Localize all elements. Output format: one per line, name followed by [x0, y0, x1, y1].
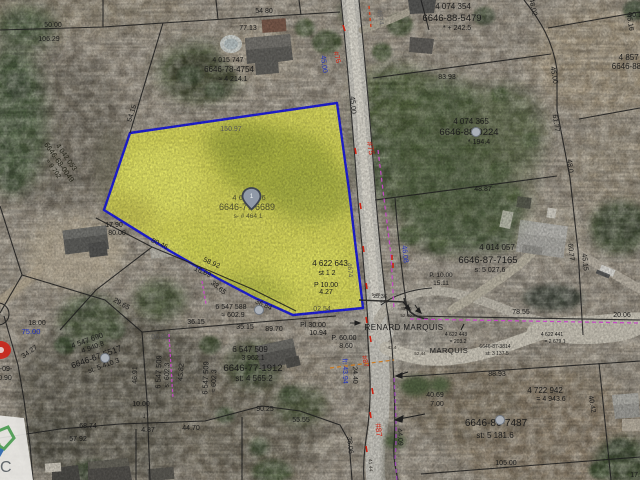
svg-text:6646-88-0224: 6646-88-0224: [439, 127, 498, 138]
svg-text:18.00: 18.00: [28, 320, 46, 327]
svg-text:6646-88-1: 6646-88-1: [612, 62, 640, 71]
svg-text:48.87: 48.87: [474, 186, 492, 193]
svg-text:Pl 30.00: Pl 30.00: [300, 322, 326, 329]
svg-text:106.29: 106.29: [38, 36, 60, 43]
svg-text:3 962.1: 3 962.1: [241, 355, 264, 362]
svg-text:4 015 747: 4 015 747: [212, 57, 243, 64]
svg-text:st: 3 137.5: st: 3 137.5: [485, 351, 509, 357]
svg-text:24.40: 24.40: [351, 366, 359, 384]
svg-text:6 547 509: 6 547 509: [200, 361, 210, 395]
svg-text:46.91: 46.91: [132, 366, 140, 384]
svg-text:4 074 354: 4 074 354: [435, 2, 471, 11]
svg-text:4.79: 4.79: [380, 299, 389, 304]
svg-text:52.80: 52.80: [400, 313, 412, 318]
svg-text:RENARD MARQUIS: RENARD MARQUIS: [365, 323, 444, 332]
svg-text:75.00: 75.00: [22, 327, 41, 336]
svg-text:57.92: 57.92: [69, 436, 87, 443]
svg-text:* 194.4: * 194.4: [468, 139, 490, 146]
svg-text:P. 10.00: P. 10.00: [429, 272, 453, 279]
svg-text:8.60: 8.60: [339, 343, 353, 350]
svg-text:* + 242.5: * + 242.5: [443, 25, 471, 32]
svg-text:50.00: 50.00: [44, 22, 62, 29]
svg-text:150.97: 150.97: [220, 126, 242, 133]
svg-text:10.94: 10.94: [309, 330, 327, 337]
svg-text:6646-87-7165: 6646-87-7165: [458, 255, 517, 266]
svg-text:52.44: 52.44: [414, 351, 426, 356]
svg-text:1: 1: [250, 193, 254, 200]
svg-text:4 722 942: 4 722 942: [527, 386, 563, 395]
svg-text:41 44: 41 44: [367, 459, 374, 472]
svg-text:≈ 602.3: ≈ 602.3: [211, 369, 219, 393]
svg-text:ft: 43.94: ft: 43.94: [341, 358, 349, 384]
svg-text:105.00: 105.00: [495, 460, 517, 467]
svg-text:4 622 643: 4 622 643: [312, 259, 348, 268]
svg-text:4.87: 4.87: [141, 427, 155, 434]
svg-text:s: 602.3: s: 602.3: [164, 362, 172, 387]
svg-text:#87: #87: [373, 423, 383, 438]
svg-text:44.09: 44.09: [395, 428, 403, 446]
svg-text:17.1: 17.1: [630, 472, 640, 479]
svg-text:17.90: 17.90: [105, 222, 123, 229]
svg-text:77.13: 77.13: [239, 25, 257, 32]
svg-text:C: C: [0, 459, 12, 476]
svg-text:st: 4 565.2: st: 4 565.2: [235, 374, 273, 383]
svg-text:43.4: 43.4: [388, 345, 397, 350]
svg-text:02.54: 02.54: [313, 306, 331, 313]
svg-text:06.84: 06.84: [151, 334, 169, 341]
svg-text:80.00: 80.00: [108, 230, 126, 237]
svg-text:40.69: 40.69: [426, 392, 444, 399]
svg-text:55.55: 55.55: [292, 417, 310, 424]
svg-text:s- # 464 1: s- # 464 1: [234, 213, 263, 220]
svg-text:≈ 602.9: ≈ 602.9: [221, 312, 244, 319]
svg-text:4 622 443: 4 622 443: [445, 332, 467, 338]
svg-text:6646-88-5479: 6646-88-5479: [422, 13, 481, 24]
svg-text:4 014 057: 4 014 057: [479, 243, 515, 252]
svg-text:MARQUIS: MARQUIS: [430, 346, 469, 355]
svg-text:20.06: 20.06: [613, 312, 631, 319]
svg-text:= 203.2: = 203.2: [450, 339, 467, 345]
svg-text:= 4 943.6: = 4 943.6: [536, 396, 565, 403]
svg-text:st: 5 181.6: st: 5 181.6: [476, 431, 514, 440]
svg-text:= 2 679.1: = 2 679.1: [545, 339, 566, 345]
svg-text:7.00: 7.00: [430, 401, 444, 408]
svg-text:54 80: 54 80: [255, 8, 273, 15]
svg-text:P. 60.00: P. 60.00: [331, 335, 356, 342]
svg-text:88.93: 88.93: [488, 371, 506, 378]
svg-text:6646-77-1912: 6646-77-1912: [223, 363, 282, 374]
svg-text:st 1 2: st 1 2: [318, 270, 335, 277]
svg-text:4 622 441: 4 622 441: [541, 332, 563, 338]
svg-text:6 547 509: 6 547 509: [232, 345, 268, 354]
svg-text:0.90: 0.90: [0, 375, 12, 382]
svg-text:1.76: 1.76: [372, 292, 381, 297]
svg-text:6646-78-4754: 6646-78-4754: [204, 65, 254, 74]
svg-text:15.11: 15.11: [433, 280, 449, 287]
svg-text:6 547 588: 6 547 588: [215, 304, 246, 311]
svg-text:4674: 4674: [345, 263, 353, 278]
svg-text:s: 5 027.6: s: 5 027.6: [475, 267, 506, 274]
svg-text:6646-87-3814: 6646-87-3814: [479, 344, 510, 350]
svg-text:68.74: 68.74: [79, 423, 97, 430]
svg-text:≈ 4 214.1: ≈ 4 214.1: [218, 76, 247, 83]
svg-text:4 074 365: 4 074 365: [453, 117, 489, 126]
svg-text:35.15: 35.15: [236, 324, 254, 331]
svg-text:10.00: 10.00: [132, 401, 150, 408]
svg-text:90.25: 90.25: [256, 406, 274, 413]
svg-text:4 857 3: 4 857 3: [619, 53, 640, 62]
svg-text:36.15: 36.15: [187, 319, 205, 326]
svg-text:44.70: 44.70: [182, 425, 200, 432]
svg-text:4.27: 4.27: [319, 289, 333, 296]
svg-text:83.93: 83.93: [438, 74, 456, 81]
svg-text:↓: ↓: [142, 411, 146, 420]
svg-text:89.70: 89.70: [265, 326, 283, 333]
svg-text:-09-: -09-: [0, 366, 13, 373]
svg-text:90.1: 90.1: [628, 12, 640, 19]
svg-text:P 10.00: P 10.00: [314, 282, 338, 289]
svg-text:6 547 509: 6 547 509: [153, 355, 163, 389]
svg-text:78.55: 78.55: [512, 309, 530, 316]
